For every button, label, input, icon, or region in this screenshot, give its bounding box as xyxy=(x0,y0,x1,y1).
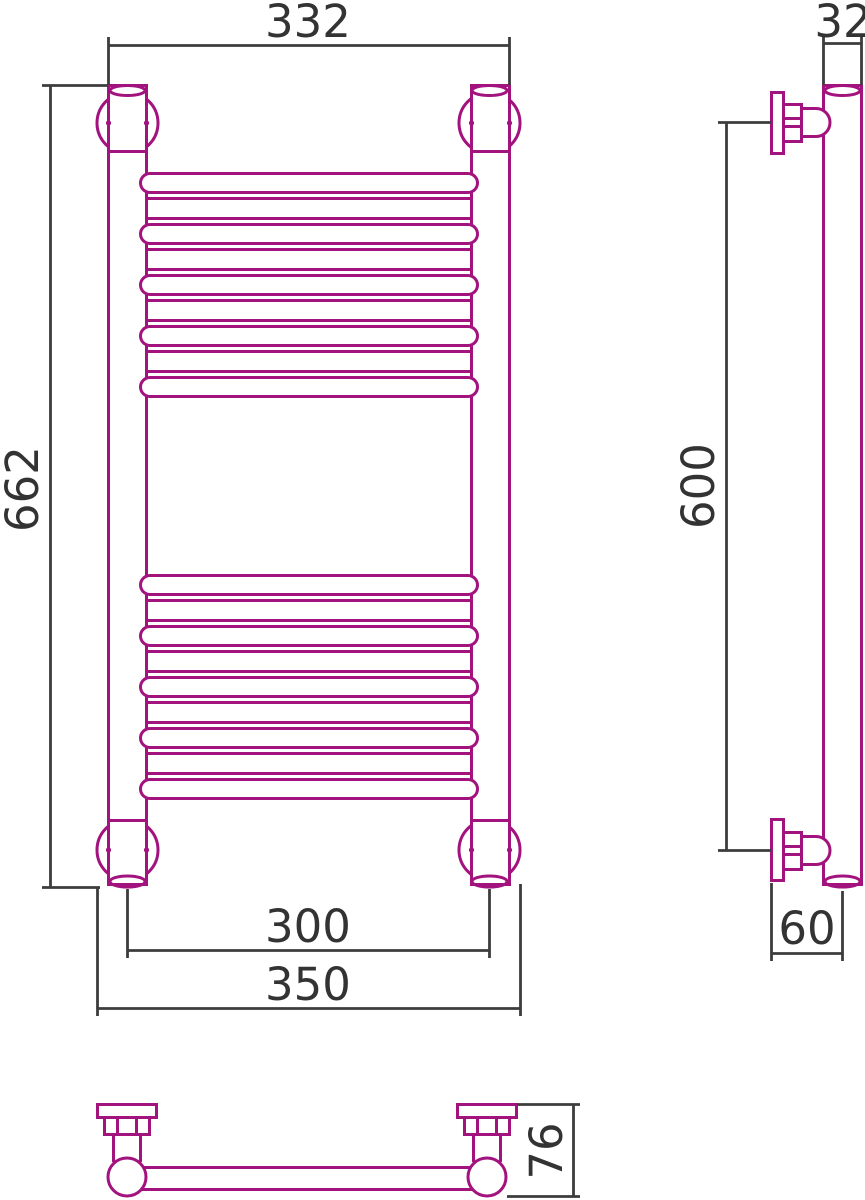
rung-stadium xyxy=(141,780,478,799)
front-left-collector xyxy=(109,86,147,885)
bottom-bracket-left xyxy=(98,1105,157,1163)
bracket-wall-plate xyxy=(98,1105,157,1118)
rung-stadium xyxy=(141,174,478,193)
dim-600: 600 xyxy=(672,122,771,851)
dim-662: 662 xyxy=(0,85,108,888)
side-collector xyxy=(824,86,862,885)
dim-32: 32 xyxy=(814,0,865,85)
bracket-wall-plate xyxy=(772,820,784,881)
rung-plain xyxy=(147,352,472,372)
bracket-nut xyxy=(784,833,802,870)
rung-stadium xyxy=(141,678,478,697)
collector-section-left xyxy=(108,1158,146,1196)
rung-plain xyxy=(147,754,472,774)
rung-stadium xyxy=(141,276,478,295)
towel-rail-drawing: 332 662 300 350 xyxy=(0,0,865,1200)
bracket-dome xyxy=(802,109,830,137)
rung-stadium xyxy=(141,729,478,748)
bracket-wall-plate xyxy=(772,93,784,154)
bracket-nut xyxy=(784,105,802,142)
rung-stadium xyxy=(141,576,478,595)
rung-plain xyxy=(147,301,472,321)
rung-plain xyxy=(147,601,472,621)
dim-60: 60 xyxy=(772,883,843,961)
bracket-nut xyxy=(465,1118,510,1135)
side-bracket-bottom xyxy=(772,820,831,881)
rung-stadium xyxy=(141,378,478,397)
bracket-wall-plate xyxy=(458,1105,517,1118)
rung-stadium xyxy=(141,327,478,346)
dim-300-label: 300 xyxy=(265,900,351,953)
bottom-bracket-right xyxy=(458,1105,517,1163)
dim-32-label: 32 xyxy=(814,0,865,48)
front-view: 332 662 300 350 xyxy=(0,0,521,1016)
drawing-canvas: 332 662 300 350 xyxy=(0,0,865,1200)
bottom-view: 76 xyxy=(98,1105,581,1198)
dim-350-label: 350 xyxy=(265,958,351,1011)
side-view: 32 600 60 xyxy=(672,0,865,961)
rung-stadium xyxy=(141,627,478,646)
dim-662-label: 662 xyxy=(0,446,49,532)
dim-76-label: 76 xyxy=(520,1122,573,1179)
bottom-rung-tube xyxy=(140,1168,474,1190)
bracket-nut xyxy=(105,1118,150,1135)
rung-stadium xyxy=(141,225,478,244)
bracket-dome xyxy=(802,837,831,865)
rung-plain xyxy=(147,652,472,672)
front-right-collector xyxy=(472,86,510,885)
dim-300: 300 xyxy=(128,889,490,958)
collector-section-right xyxy=(468,1158,506,1196)
dim-600-label: 600 xyxy=(672,443,725,529)
rung-plain xyxy=(147,199,472,219)
dim-60-label: 60 xyxy=(778,902,835,955)
side-bracket-top xyxy=(772,93,830,154)
rung-plain xyxy=(147,250,472,270)
dim-332: 332 xyxy=(109,0,510,85)
rung-plain xyxy=(147,703,472,723)
dim-332-label: 332 xyxy=(265,0,351,48)
